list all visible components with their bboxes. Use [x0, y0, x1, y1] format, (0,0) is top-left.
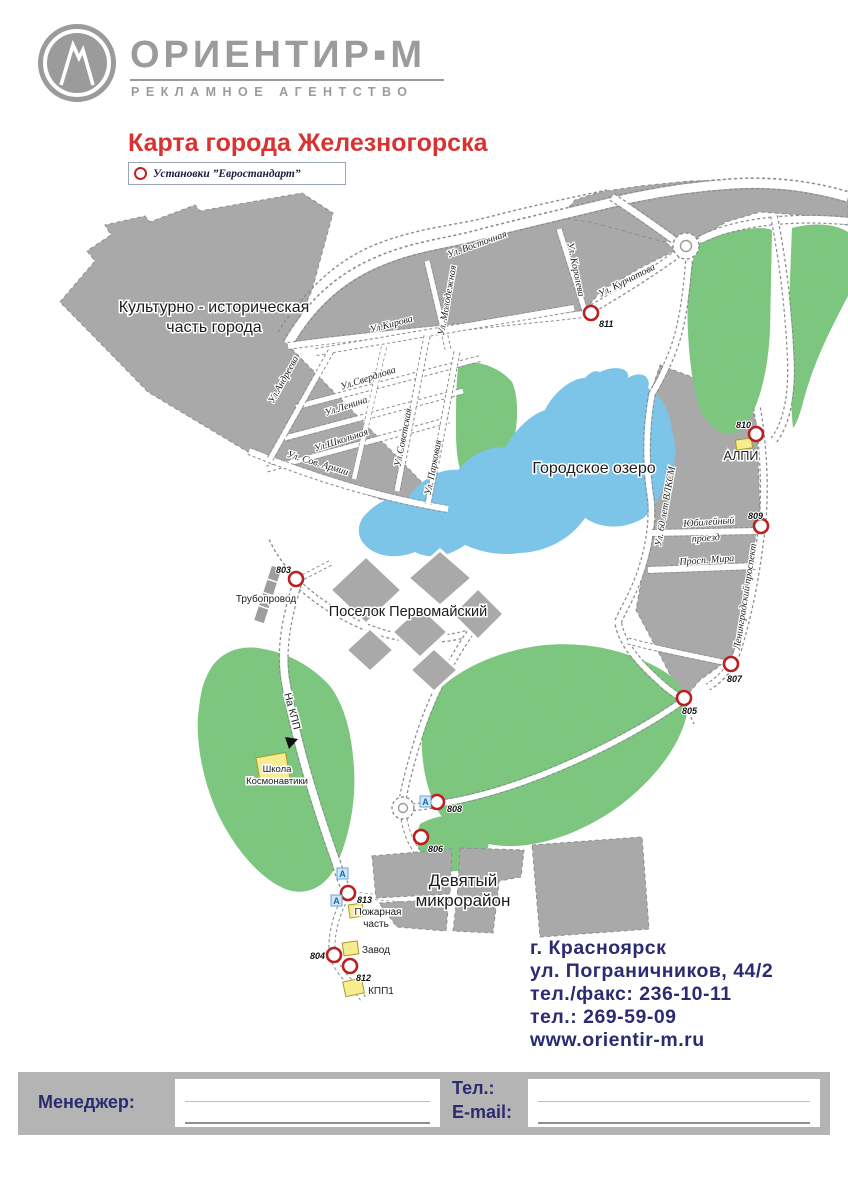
label-ninth-district-line2: микрорайон: [416, 891, 511, 910]
contact-telfax: тел./факс: 236-10-11: [530, 983, 773, 1006]
bus-marker-1-label: А: [422, 797, 429, 807]
point-811-label: 811: [599, 319, 613, 329]
fire-station: Пожарная часть: [348, 903, 401, 930]
bus-marker-3: А: [331, 895, 342, 906]
point-806-label: 806: [428, 844, 444, 854]
forest-northeast-west: [688, 228, 773, 433]
manager-label: Менеджер:: [38, 1092, 135, 1113]
point-807-label: 807: [727, 674, 743, 684]
label-alpi: АЛПИ: [724, 449, 759, 463]
contact-block: г. Красноярск ул. Пограничников, 44/2 те…: [530, 937, 773, 1052]
roundabout-south: [392, 797, 414, 819]
email-label: E-mail:: [452, 1102, 512, 1123]
label-kpp1: КПП1: [368, 986, 394, 997]
bus-marker-2-label: А: [339, 869, 346, 879]
label-city-lake: Городское озеро: [532, 460, 655, 477]
label-pipeline: Трубопровод: [236, 593, 296, 605]
point-803: 803: [276, 565, 303, 586]
point-809-label: 809: [748, 511, 763, 521]
contact-website-link[interactable]: www.orientir-m.ru: [530, 1029, 773, 1052]
bus-marker-1: А: [420, 796, 431, 807]
point-813-label: 813: [357, 895, 372, 905]
point-805-label: 805: [682, 706, 698, 716]
label-zavod: Завод: [362, 945, 390, 956]
point-812-label: 812: [356, 973, 371, 983]
label-historic-district-line2: часть города: [166, 319, 262, 336]
forest-northeast-east: [789, 225, 848, 428]
label-fire-line1: Пожарная: [355, 907, 402, 918]
tel-label: Тел.:: [452, 1078, 495, 1099]
factory: Завод: [342, 941, 390, 956]
footer-form-bar: Менеджер: Тел.: E-mail:: [18, 1072, 830, 1135]
historic-district-block: [60, 193, 448, 515]
label-fire-line2: часть: [363, 919, 389, 930]
point-804: 804: [310, 948, 341, 962]
street-yubileyny-line2: проезд: [691, 532, 720, 545]
tel-email-field[interactable]: [528, 1079, 820, 1127]
contact-tel: тел.: 269-59-09: [530, 1006, 773, 1029]
roundabout-north: [673, 233, 699, 259]
page: ОРИЕНТИР▪М РЕКЛАМНОЕ АГЕНТСТВО Карта гор…: [0, 0, 848, 1200]
label-ninth-district-line1: Девятый: [429, 871, 498, 890]
point-808-label: 808: [447, 804, 462, 814]
point-804-label: 804: [310, 951, 325, 961]
label-pervomaisky: Поселок Первомайский: [329, 604, 487, 620]
point-807: 807: [724, 657, 743, 684]
contact-address: ул. Пограничников, 44/2: [530, 960, 773, 983]
point-811: 811: [584, 306, 613, 329]
label-school-line1: Школа: [263, 764, 293, 775]
bus-marker-2: А: [337, 868, 348, 879]
bus-marker-3-label: А: [333, 896, 340, 906]
manager-field[interactable]: [175, 1079, 440, 1127]
label-historic-district-line1: Культурно - историческая: [119, 299, 310, 316]
point-803-label: 803: [276, 565, 291, 575]
label-school-line2: Космонавтики: [246, 776, 308, 787]
point-810-label: 810: [736, 420, 751, 430]
forest-south-central: [422, 644, 687, 846]
contact-city: г. Красноярск: [530, 937, 773, 960]
